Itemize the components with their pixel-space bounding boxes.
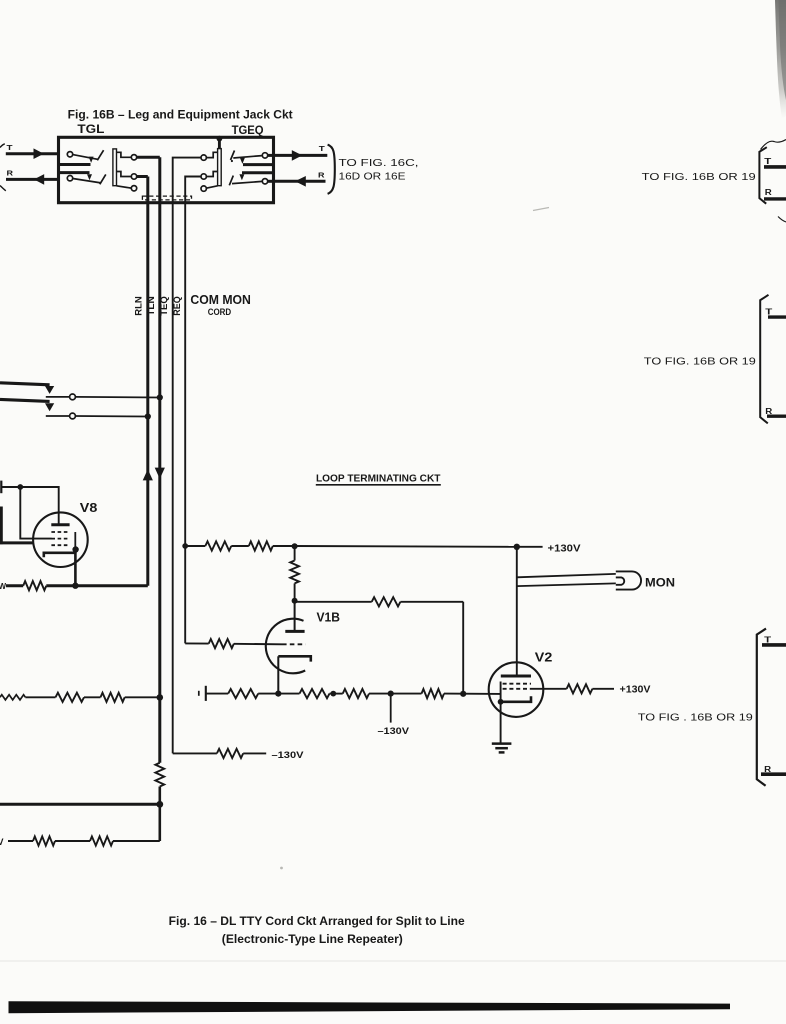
svg-text:–130V: –130V	[378, 726, 410, 737]
svg-text:T: T	[764, 634, 772, 644]
svg-text:V1B: V1B	[317, 609, 341, 624]
svg-text:16D OR 16E: 16D OR 16E	[339, 171, 406, 182]
svg-text:T: T	[765, 307, 773, 317]
svg-text:TGEQ: TGEQ	[232, 123, 264, 137]
svg-text:TLN: TLN	[146, 296, 156, 316]
svg-text:CORD: CORD	[208, 306, 232, 317]
svg-text:COM MON: COM MON	[190, 292, 251, 307]
svg-text:TEQ: TEQ	[159, 296, 169, 316]
svg-text:R: R	[765, 406, 773, 416]
svg-text:W: W	[0, 582, 7, 591]
svg-text:R: R	[318, 170, 325, 179]
svg-text:R: R	[764, 764, 772, 774]
svg-text:RLN: RLN	[134, 296, 144, 316]
svg-text:TO FIG . 16B OR 19: TO FIG . 16B OR 19	[638, 712, 753, 723]
svg-text:R: R	[7, 169, 14, 178]
svg-text:Fig. 16 – DL TTY Cord Ckt Arra: Fig. 16 – DL TTY Cord Ckt Arranged for S…	[169, 914, 465, 928]
svg-text:TO FIG. 16C,: TO FIG. 16C,	[339, 158, 419, 169]
svg-text:TO FIG. 16B OR 19: TO FIG. 16B OR 19	[642, 172, 756, 183]
svg-text:T: T	[319, 144, 325, 153]
svg-text:REQ: REQ	[172, 296, 182, 316]
svg-text:–130V: –130V	[272, 750, 305, 761]
svg-text:TGL: TGL	[77, 122, 104, 136]
svg-text:V8: V8	[80, 500, 98, 515]
svg-text:TO FIG. 16B OR 19: TO FIG. 16B OR 19	[644, 356, 756, 367]
svg-text:(Electronic-Type Line Repeater: (Electronic-Type Line Repeater)	[222, 932, 403, 946]
svg-text:MON: MON	[645, 576, 675, 590]
svg-text:R: R	[765, 187, 773, 197]
svg-text:Fig. 16B – Leg and Equipment J: Fig. 16B – Leg and Equipment Jack Ckt	[68, 108, 293, 121]
svg-text:T: T	[764, 156, 772, 166]
svg-text:+130V: +130V	[620, 685, 651, 696]
svg-text:T: T	[7, 143, 13, 152]
svg-text:0V: 0V	[0, 837, 4, 847]
svg-text:+130V: +130V	[548, 543, 582, 554]
svg-text:V2: V2	[535, 650, 553, 665]
svg-text:LOOP TERMINATING CKT: LOOP TERMINATING CKT	[316, 473, 441, 484]
